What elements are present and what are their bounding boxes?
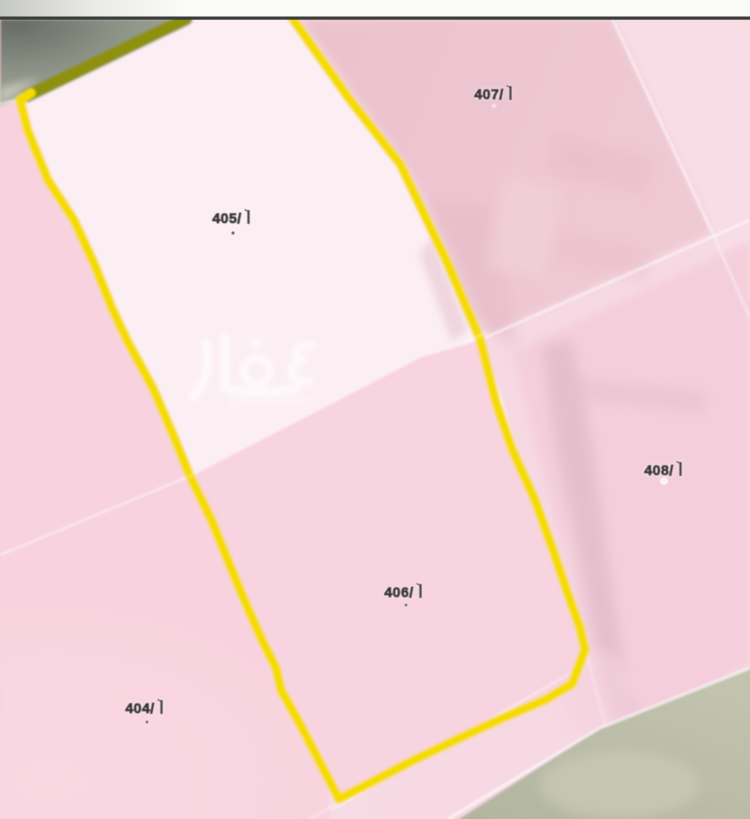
svg-text:407/: 407/ — [474, 86, 503, 102]
svg-text:404/: 404/ — [125, 700, 154, 716]
svg-text:408/: 408/ — [644, 462, 673, 478]
svg-text:405/: 405/ — [212, 210, 241, 226]
svg-text:406/: 406/ — [384, 584, 413, 600]
